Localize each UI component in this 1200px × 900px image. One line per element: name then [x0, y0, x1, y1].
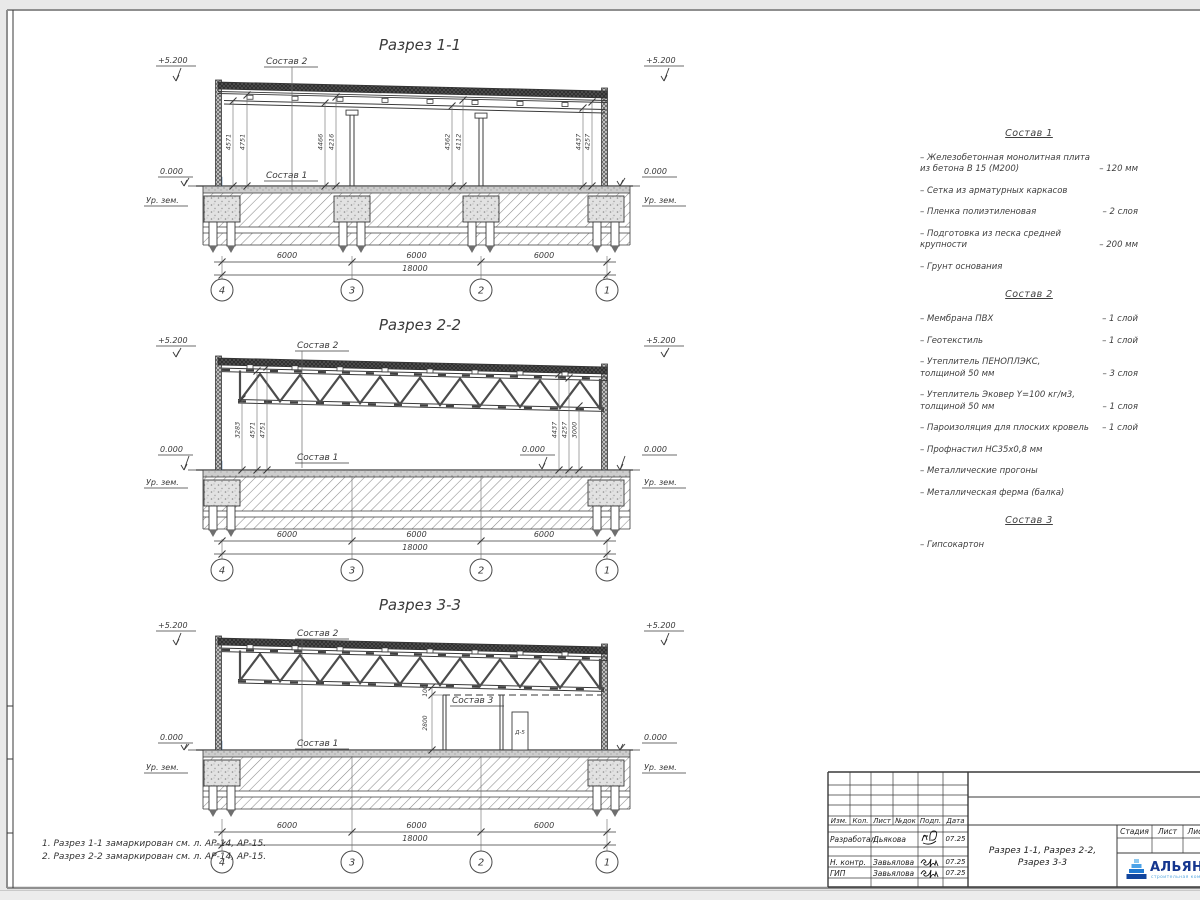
total-dimension: 18000 [402, 834, 427, 843]
tb-doc-title-line1: Разрез 1-1, Разрез 2-2, [968, 847, 1117, 856]
composition-item: – Гипсокартон [920, 540, 1138, 551]
elevation-top-left: +5.200 [158, 621, 188, 630]
span-dimension: 6000 [277, 821, 297, 830]
vertical-dimension: 4571 [225, 134, 233, 151]
vertical-dimension: 4751 [259, 422, 267, 439]
composition-callout: Состав 3 [452, 696, 494, 706]
company-logo-icon [1126, 857, 1148, 883]
item-text: – Пароизоляция для плоских кровель [920, 423, 1089, 434]
note-line: 2. Разрез 2-2 замаркирован см. л. АР-14,… [42, 851, 266, 864]
composition-item: – Металлическая ферма (балка) [920, 488, 1138, 499]
composition-item: – Подготовка из песка средней крупности–… [920, 229, 1138, 252]
span-dimension: 6000 [534, 530, 554, 539]
total-dimension: 18000 [402, 543, 427, 552]
vertical-dimension: 4437 [551, 421, 559, 438]
compositions-panel: Состав 1 – Железобетонная монолитная пли… [920, 128, 1138, 567]
section-3-3: Разрез 3-3Д-51002800Состав 2Состав 1Сост… [144, 596, 686, 873]
span-dimension: 6000 [406, 251, 426, 260]
item-value: – 120 мм [1095, 164, 1138, 175]
item-value: – 3 слоя [1099, 369, 1138, 380]
item-value: – 200 мм [1095, 240, 1138, 251]
note-line: 1. Разрез 1-1 замаркирован см. л. АР-14,… [42, 838, 266, 851]
composition-title: Состав 3 [920, 515, 1138, 526]
grid-axis-number: 1 [604, 566, 610, 577]
company-logo-text: АЛЬЯН [1150, 860, 1200, 875]
composition-title: Состав 1 [920, 128, 1138, 139]
item-text: – Утеплитель Эковер Y=100 кг/м3, толщино… [920, 390, 1075, 413]
item-text: – Грунт основания [920, 262, 1002, 273]
tb-col-kol: Кол. [850, 818, 871, 825]
grid-axis-number: 4 [219, 286, 225, 297]
ground-level-label: Ур. зем. [146, 196, 179, 205]
ground-level-label: Ур. зем. [644, 763, 677, 772]
item-text: – Железобетонная монолитная плита из бет… [920, 153, 1090, 176]
span-dimension: 6000 [277, 251, 297, 260]
drawing-page: Разрез 1-1457147514466421643624112443742… [0, 0, 1200, 900]
vertical-dimension: 4437 [575, 133, 583, 150]
tb-role-ncontr: Н. контр. [830, 859, 866, 867]
tb-name-gip: Завьялова [873, 870, 914, 878]
elevation-top-left: +5.200 [158, 56, 188, 65]
ground-level-label: Ур. зем. [146, 478, 179, 487]
composition-item: – Пленка полиэтиленовая– 2 слоя [920, 207, 1138, 218]
vertical-dimension: 4571 [249, 422, 257, 439]
door-label: Д-5 [514, 730, 525, 736]
grid-axis-number: 2 [478, 566, 484, 577]
elevation-zero-left: 0.000 [160, 445, 183, 454]
item-text: – Профнастил НС35х0,8 мм [920, 445, 1042, 456]
tb-date-gip: 07.25 [943, 870, 968, 877]
item-value: – 1 слой [1098, 314, 1138, 325]
vertical-dimension: 2800 [422, 715, 429, 730]
elevation-top-left: +5.200 [158, 336, 188, 345]
vertical-dimension: 3283 [234, 422, 242, 439]
item-text: – Утеплитель ПЕНОПЛЭКС, толщиной 50 мм [920, 357, 1040, 380]
tb-col-list: Лист [871, 818, 893, 825]
tb-role-developer: Разработал [830, 836, 875, 844]
tb-role-gip: ГИП [830, 870, 845, 878]
tb-col-podp: Подп. [918, 818, 943, 825]
span-dimension: 6000 [277, 530, 297, 539]
tb-col-ndok: №док [893, 818, 918, 825]
elevation-zero-right: 0.000 [644, 167, 667, 176]
elevation-zero-right: 0.000 [644, 445, 667, 454]
vertical-dimension: 3000 [571, 422, 579, 439]
section-1-1: Разрез 1-1457147514466421643624112443742… [144, 36, 686, 301]
grid-axis-number: 3 [349, 566, 355, 577]
tb-name-developer: Дьякова [873, 836, 906, 844]
company-logo-subtitle: строительная ком [1151, 875, 1200, 880]
vertical-dimension: 4362 [444, 134, 452, 151]
span-dimension: 6000 [534, 821, 554, 830]
tb-date-ncontr: 07.25 [943, 859, 968, 866]
item-value: – 2 слоя [1099, 207, 1138, 218]
ground-level-label: Ур. зем. [644, 196, 677, 205]
item-text: – Геотекстиль [920, 336, 983, 347]
tb-stage-col: Стадия [1117, 828, 1152, 836]
composition-callout: Состав 1 [266, 171, 307, 181]
elevation-top-right: +5.200 [646, 56, 676, 65]
tb-doc-title-line2: Рзарез 3-3 [968, 859, 1117, 868]
composition-item: – Металлические прогоны [920, 466, 1138, 477]
vertical-dimension: 4112 [455, 134, 463, 151]
item-value: – 1 слой [1098, 423, 1138, 434]
item-text: – Подготовка из песка средней крупности [920, 229, 1061, 252]
item-text: – Сетка из арматурных каркасов [920, 186, 1067, 197]
composition-item: – Сетка из арматурных каркасов [920, 186, 1138, 197]
span-dimension: 6000 [406, 821, 426, 830]
composition-item: – Мембрана ПВХ– 1 слой [920, 314, 1138, 325]
vertical-dimension: 4751 [239, 134, 247, 151]
composition-2: Состав 2 – Мембрана ПВХ– 1 слой – Геотек… [920, 289, 1138, 499]
notes: 1. Разрез 1-1 замаркирован см. л. АР-14,… [42, 838, 266, 864]
grid-axis-number: 1 [604, 286, 610, 297]
grid-axis-number: 3 [349, 858, 355, 869]
item-value: – 1 слой [1098, 336, 1138, 347]
tb-date-developer: 07.25 [943, 836, 968, 843]
item-text: – Металлическая ферма (балка) [920, 488, 1064, 499]
composition-3: Состав 3 – Гипсокартон [920, 515, 1138, 551]
composition-item: – Железобетонная монолитная плита из бет… [920, 153, 1138, 176]
elevation-zero-inner: 0.000 [522, 445, 545, 454]
grid-axis-number: 2 [478, 286, 484, 297]
ground-level-label: Ур. зем. [644, 478, 677, 487]
grid-axis-number: 2 [478, 858, 484, 869]
composition-item: – Грунт основания [920, 262, 1138, 273]
composition-item: – Утеплитель ПЕНОПЛЭКС, толщиной 50 мм– … [920, 357, 1138, 380]
composition-callout: Состав 1 [297, 739, 338, 749]
composition-item: – Пароизоляция для плоских кровель– 1 сл… [920, 423, 1138, 434]
signature-icon [919, 857, 942, 867]
signature-icon [919, 828, 942, 845]
signature-icon [919, 868, 942, 878]
item-value: – 1 слоя [1099, 402, 1138, 413]
composition-item: – Утеплитель Эковер Y=100 кг/м3, толщино… [920, 390, 1138, 413]
section-title: Разрез 1-1 [379, 36, 461, 54]
section-title: Разрез 2-2 [379, 316, 461, 334]
elevation-zero-left: 0.000 [160, 167, 183, 176]
composition-1: Состав 1 – Железобетонная монолитная пли… [920, 128, 1138, 273]
elevation-top-right: +5.200 [646, 621, 676, 630]
grid-axis-number: 3 [349, 286, 355, 297]
vertical-dimension: 100 [422, 685, 429, 697]
item-text: – Пленка полиэтиленовая [920, 207, 1036, 218]
composition-title: Состав 2 [920, 289, 1138, 300]
grid-axis-number: 1 [604, 858, 610, 869]
tb-sheets-col: Лис [1183, 828, 1200, 836]
vertical-dimension: 4257 [584, 133, 592, 150]
tb-col-izm: Изм. [828, 818, 850, 825]
composition-callout: Состав 2 [266, 57, 308, 67]
section-2-2: Разрез 2-2328345714751443742573000Состав… [144, 316, 686, 581]
elevation-zero-left: 0.000 [160, 733, 183, 742]
item-text: – Металлические прогоны [920, 466, 1038, 477]
tb-name-ncontr: Завьялова [873, 859, 914, 867]
composition-callout: Состав 1 [297, 453, 338, 463]
elevation-top-right: +5.200 [646, 336, 676, 345]
span-dimension: 6000 [534, 251, 554, 260]
vertical-dimension: 4466 [317, 134, 325, 151]
composition-item: – Профнастил НС35х0,8 мм [920, 445, 1138, 456]
tb-sheet-col: Лист [1152, 828, 1183, 836]
composition-callout: Состав 2 [297, 341, 339, 351]
vertical-dimension: 4216 [328, 134, 336, 151]
vertical-dimension: 4257 [561, 421, 569, 438]
composition-callout: Состав 2 [297, 629, 339, 639]
tb-col-data: Дата [943, 818, 968, 825]
total-dimension: 18000 [402, 264, 427, 273]
elevation-zero-right: 0.000 [644, 733, 667, 742]
composition-item: – Геотекстиль– 1 слой [920, 336, 1138, 347]
section-title: Разрез 3-3 [379, 596, 461, 614]
ground-level-label: Ур. зем. [146, 763, 179, 772]
span-dimension: 6000 [406, 530, 426, 539]
item-text: – Мембрана ПВХ [920, 314, 993, 325]
item-text: – Гипсокартон [920, 540, 984, 551]
grid-axis-number: 4 [219, 566, 225, 577]
